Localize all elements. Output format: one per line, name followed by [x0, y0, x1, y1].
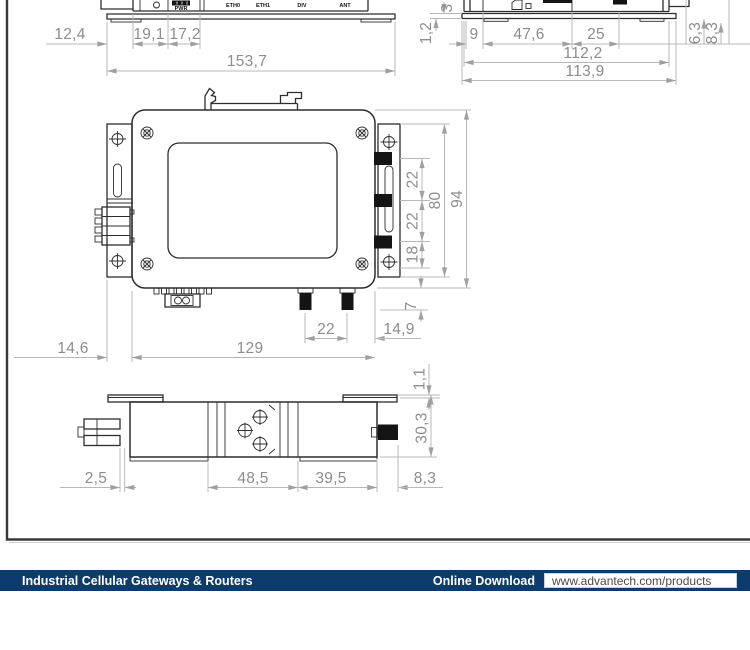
dim-side-overall-width: 113,9: [565, 63, 604, 80]
port-label-div: DIV: [297, 3, 307, 9]
rear-view-dimensions: 22 22 18 80 94 7 22 14,9 14,6 129 1,1: [14, 110, 471, 410]
dim-rear-ant-bottom: 18: [405, 246, 422, 264]
front-view-drawing: PWR ETH0 ETH1 DIV ANT: [101, 0, 395, 22]
bottom-view-dimensions: 2,5 48,5 39,5 8,3 30,3: [60, 395, 443, 492]
dim-rear-sma-edge: 14,9: [383, 321, 414, 338]
bottom-connectors: [154, 288, 355, 310]
dim-side-body-width: 112,2: [563, 45, 602, 62]
footer-category-label: Industrial Cellular Gateways & Routers: [22, 574, 253, 588]
dim-bottom-overall-depth: 30,3: [414, 412, 431, 443]
dim-side-clipped: 3: [439, 4, 456, 13]
serial-terminal: [95, 207, 134, 245]
corner-screws: [141, 127, 368, 270]
din-rail-hook: [205, 89, 216, 110]
front-view-dimensions: 12,4 19,1 17,2 153,7: [46, 14, 395, 76]
sma-connector-3: [374, 236, 392, 249]
dim-rear-bracket-overhang: 14,6: [57, 340, 88, 357]
port-label-eth1: ETH1: [256, 3, 270, 9]
dim-rear-bracket-height: 80: [427, 192, 444, 210]
dim-rear-conn-protrusion: 7: [403, 302, 420, 311]
serial-connector-side: [78, 419, 120, 446]
din-rail-latch: [211, 93, 302, 110]
port-label-eth0: ETH0: [226, 3, 240, 9]
bottom-view-drawing: [78, 395, 398, 461]
dim-bottom-conn-protrusion: 8,3: [414, 470, 436, 487]
dim-front-eth-block: 17,2: [169, 26, 200, 43]
right-bracket: [374, 124, 400, 277]
technical-drawing: PWR ETH0 ETH1 DIV ANT 12,4 19,1 17,2 153…: [0, 0, 750, 550]
dim-side-foot-height: 1,2: [418, 22, 435, 44]
led-indicator: [154, 2, 160, 8]
dim-rear-plate-thickness: 1,1: [412, 368, 429, 390]
sim-card-icon: [512, 0, 522, 10]
dim-side-conn-a: 6,3: [687, 22, 704, 44]
dim-bottom-conn-offset: 2,5: [85, 470, 107, 487]
dim-side-sim-offset: 47,6: [513, 26, 544, 43]
footer-bar: Industrial Cellular Gateways & Routers O…: [0, 570, 750, 591]
side-view-dimensions: 9 47,6 25 112,2 113,9 1,2 3 6,3 8,3: [418, 0, 750, 85]
antenna-connector-side: [372, 425, 399, 441]
footer-download-group: Online Download www.advantech.com/produc…: [433, 573, 737, 588]
dim-side-conn-b: 8,3: [704, 22, 721, 44]
dim-rear-overall-height: 94: [449, 190, 466, 208]
dim-front-overall-width: 153,7: [227, 53, 267, 70]
side-view-drawing: [462, 0, 689, 21]
rear-view-drawing: [95, 89, 400, 311]
left-bracket: [107, 124, 132, 277]
dim-rear-sma-spacing: 22: [317, 321, 335, 338]
dim-front-pwr-block: 19,1: [133, 26, 164, 43]
sma-connector-bottom-1: [300, 293, 312, 310]
dim-rear-body-width: 129: [237, 340, 264, 357]
dim-rear-ant-top: 22: [405, 171, 422, 189]
sma-connector-1: [374, 152, 392, 165]
download-url-box[interactable]: www.advantech.com/products: [544, 573, 737, 588]
dim-rear-ant-mid: 22: [405, 212, 422, 230]
sma-connector-2: [374, 194, 392, 207]
mounting-screws: [237, 405, 275, 454]
online-download-label: Online Download: [433, 574, 535, 588]
port-label-pwr: PWR: [175, 6, 188, 12]
dim-side-slot: 25: [587, 26, 605, 43]
dim-bottom-center-width: 48,5: [237, 470, 268, 487]
sma-connector-bottom-2: [342, 293, 354, 310]
dim-bottom-right-width: 39,5: [315, 470, 346, 487]
port-label-ant: ANT: [339, 3, 351, 9]
dim-side-edge: 9: [470, 26, 479, 43]
dim-front-led-offset: 12,4: [54, 26, 85, 43]
